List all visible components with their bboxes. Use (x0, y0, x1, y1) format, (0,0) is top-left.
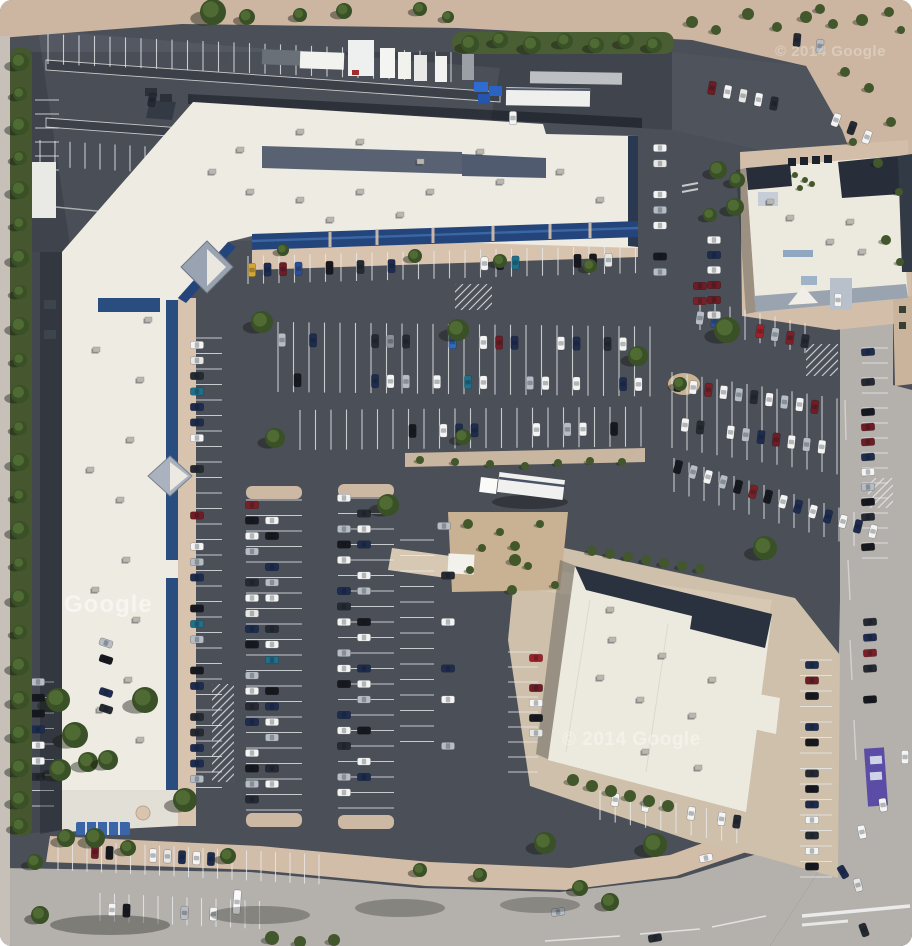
map-watermark-0: Google (64, 591, 153, 618)
aerial-imagery: Google© 2014 Google© 2014 Google (0, 0, 912, 946)
satellite-map-canvas[interactable]: Google© 2014 Google© 2014 Google (0, 0, 912, 946)
map-watermark-1: © 2014 Google (562, 729, 701, 750)
map-watermark-2: © 2014 Google (775, 43, 886, 60)
